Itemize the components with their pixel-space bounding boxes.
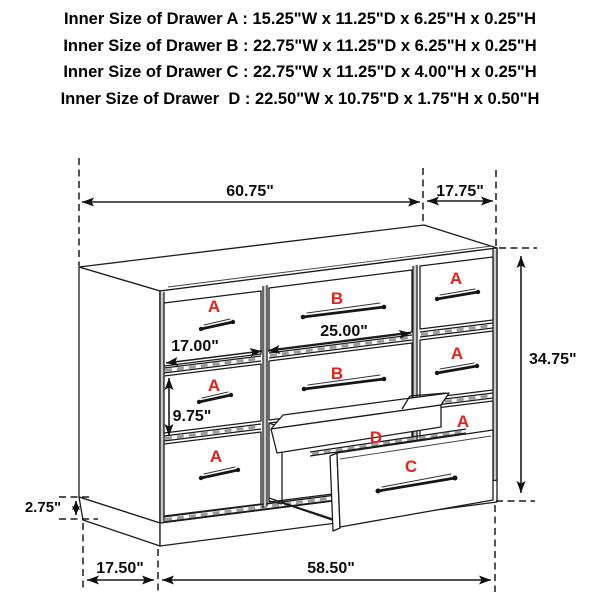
drawer-label-a2: A (208, 376, 220, 395)
drawer-label-a1: A (208, 297, 220, 316)
dim-label-drawer-b-width: 25.00" (320, 323, 368, 340)
drawer-label-b1: B (331, 289, 343, 308)
dim-label-overall-height: 34.75" (529, 351, 577, 368)
drawer-label-a5: A (451, 344, 463, 363)
dim-label-base-depth: 17.50" (96, 560, 144, 577)
drawer-label-a6: A (457, 412, 469, 431)
drawer-column-left (164, 291, 261, 516)
dim-label-base-height: 2.75" (25, 499, 61, 516)
drawer-a3-face (164, 432, 261, 516)
dim-label-top-depth: 17.75" (436, 183, 484, 200)
dresser-dimension-diagram: 60.75" 17.75" (0, 0, 600, 600)
divider-left-middle (263, 285, 267, 508)
dimension-overall-height: 34.75" (496, 248, 577, 501)
dim-label-base-width: 58.50" (307, 560, 355, 577)
dim-label-top-width: 60.75" (226, 183, 274, 200)
drawer-label-d: D (370, 428, 382, 447)
dim-label-drawer-a-width: 17.00" (171, 338, 219, 355)
drawer-label-a4: A (450, 269, 462, 288)
drawer-label-c: C (405, 457, 417, 476)
dim-label-drawer-a-height: 9.75" (173, 408, 212, 425)
drawer-a5-face (420, 331, 493, 399)
drawer-label-a3: A (210, 447, 222, 466)
cabinet-left-side-panel (79, 267, 160, 523)
drawer-a4-face (420, 257, 493, 329)
drawer-label-b2: B (331, 364, 343, 383)
